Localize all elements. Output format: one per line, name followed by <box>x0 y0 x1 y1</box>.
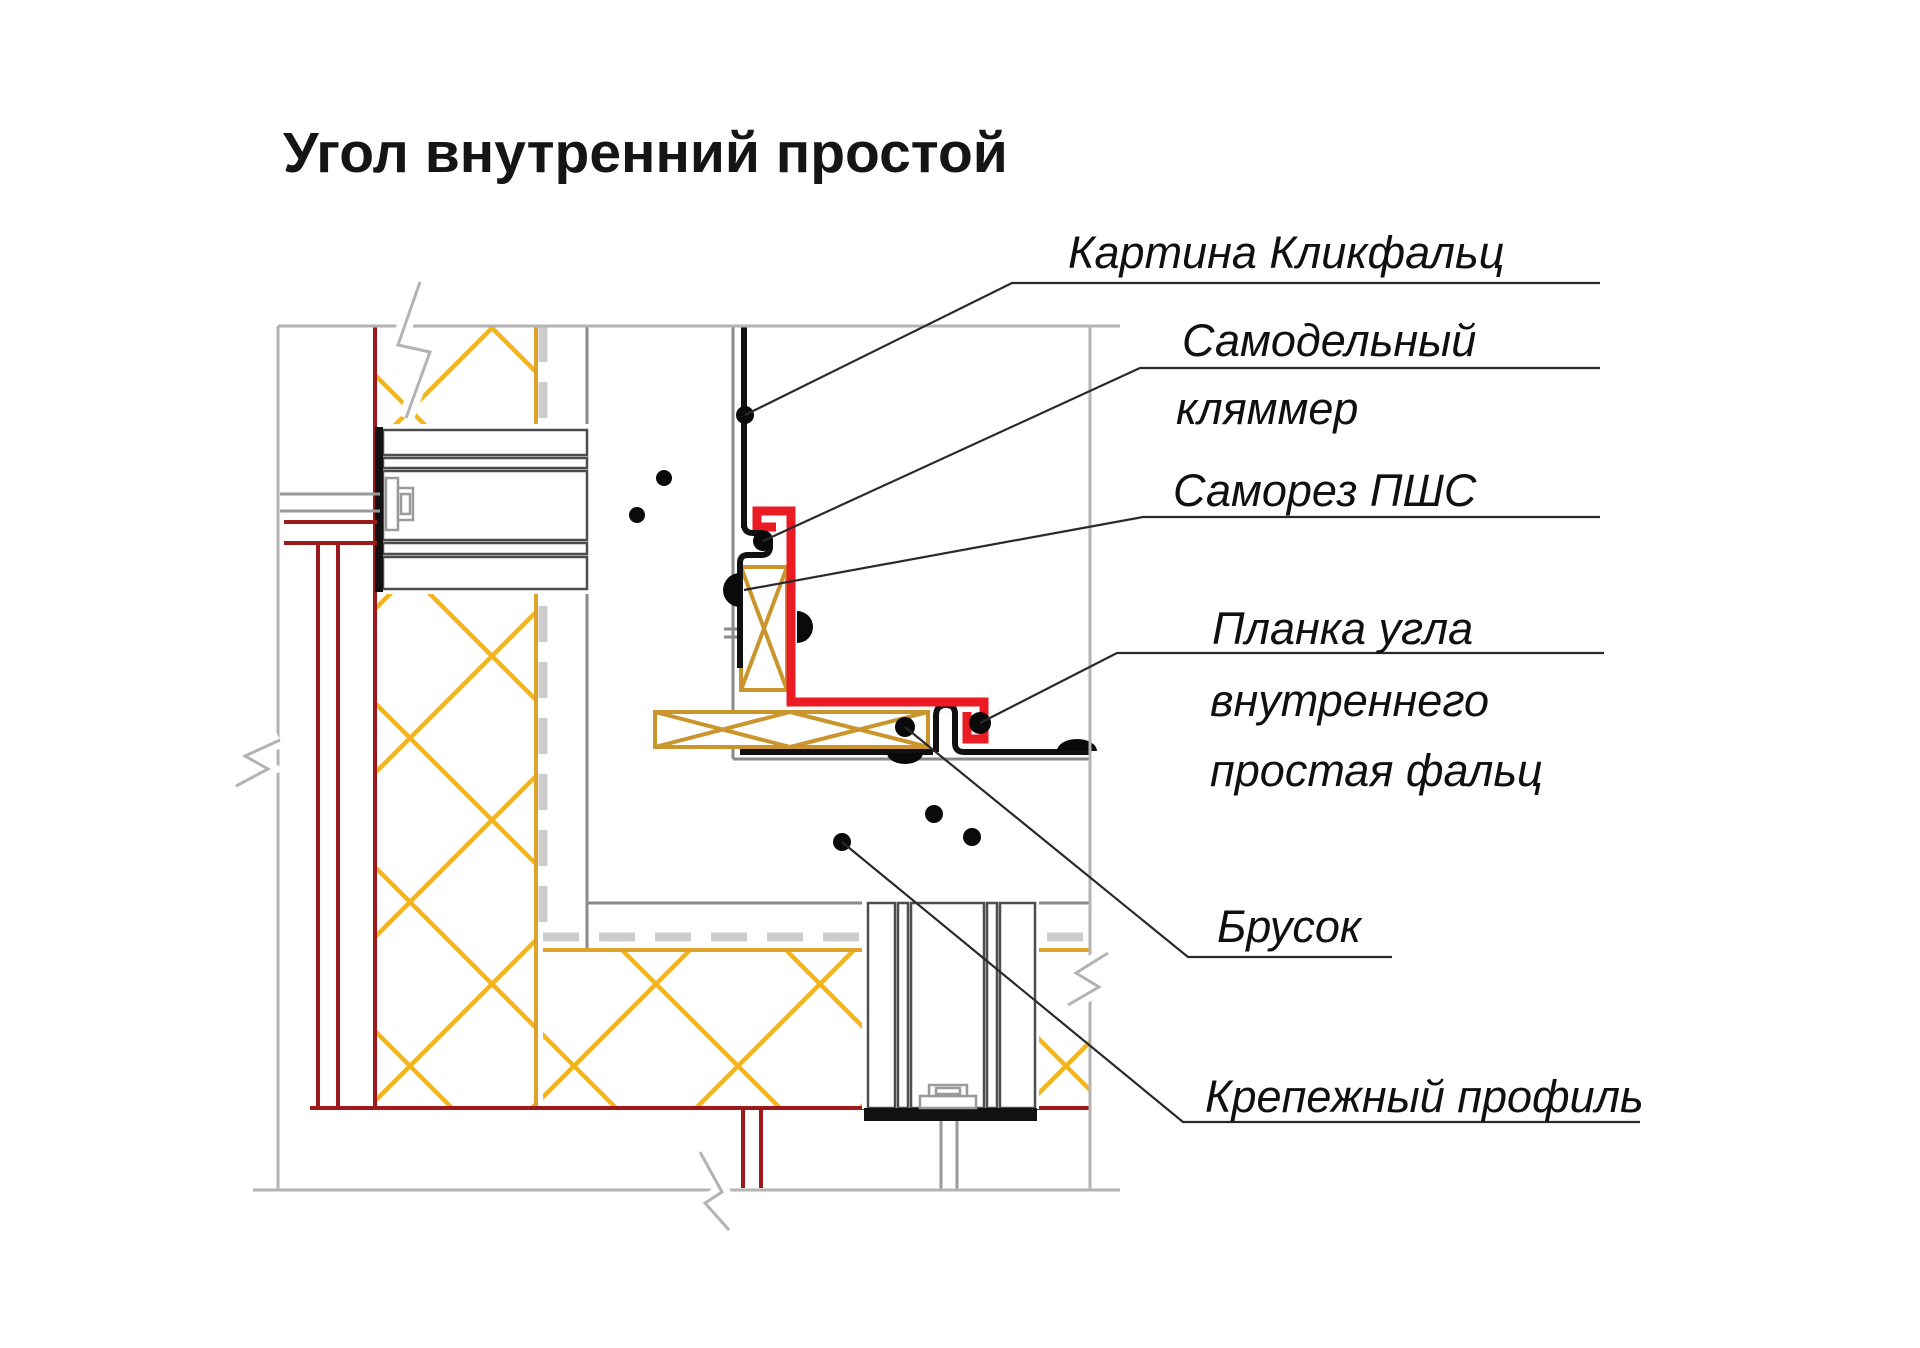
bracket-bar <box>383 543 587 554</box>
callout-label: Саморез ПШС <box>1173 465 1477 516</box>
bracket-bar <box>868 903 895 1108</box>
bracket-bar <box>383 458 587 468</box>
inner-corner-strip <box>757 511 984 739</box>
dot <box>629 507 645 523</box>
fastening-profile-bottom <box>862 901 1039 1190</box>
screw-pshs-head <box>723 573 740 607</box>
anchor-plate <box>386 478 398 530</box>
page-title: Угол внутренний простой <box>283 121 1008 185</box>
bracket-bar <box>383 557 587 589</box>
interior-membrane-left <box>284 522 377 1108</box>
bracket-bar <box>1000 903 1035 1108</box>
block-screw-head <box>887 753 923 764</box>
fastening-profile-left <box>280 424 589 594</box>
anchor-head-inner <box>401 494 410 514</box>
callout-label: простая фальц <box>1210 745 1543 796</box>
strip-screw-head <box>797 611 813 643</box>
callout-screw-pshs: Саморез ПШС <box>744 465 1600 590</box>
bracket-bar <box>987 903 997 1108</box>
drawing-page: Угол внутренний простой <box>0 0 1920 1348</box>
bracket-bar <box>911 903 984 1108</box>
bracket-base-bar <box>864 1108 1037 1121</box>
anchor-plate <box>920 1096 976 1108</box>
technical-drawing: Угол внутренний простой <box>0 0 1920 1348</box>
callout-label: Самодельный <box>1182 315 1476 366</box>
callout-label: Картина Кликфальц <box>1068 227 1504 278</box>
anchor-head-inner <box>936 1088 960 1094</box>
callout-label: внутреннего <box>1210 675 1489 726</box>
bracket-bar <box>383 430 587 455</box>
leader-line <box>744 517 1600 590</box>
fastener-dots <box>629 470 981 846</box>
callout-label: Крепежный профиль <box>1205 1071 1644 1122</box>
bracket-bar <box>898 903 908 1108</box>
timber-block-horizontal <box>655 712 928 747</box>
dot <box>656 470 672 486</box>
dot <box>963 828 981 846</box>
callout-label: Планка угла <box>1212 603 1473 654</box>
corner-detail <box>655 505 1097 764</box>
dot <box>925 805 943 823</box>
callout-inner-corner-strip: Планка угла внутреннего простая фальц <box>969 603 1604 796</box>
callout-label: Брусок <box>1217 901 1363 952</box>
callout-label: кляммер <box>1176 383 1358 434</box>
